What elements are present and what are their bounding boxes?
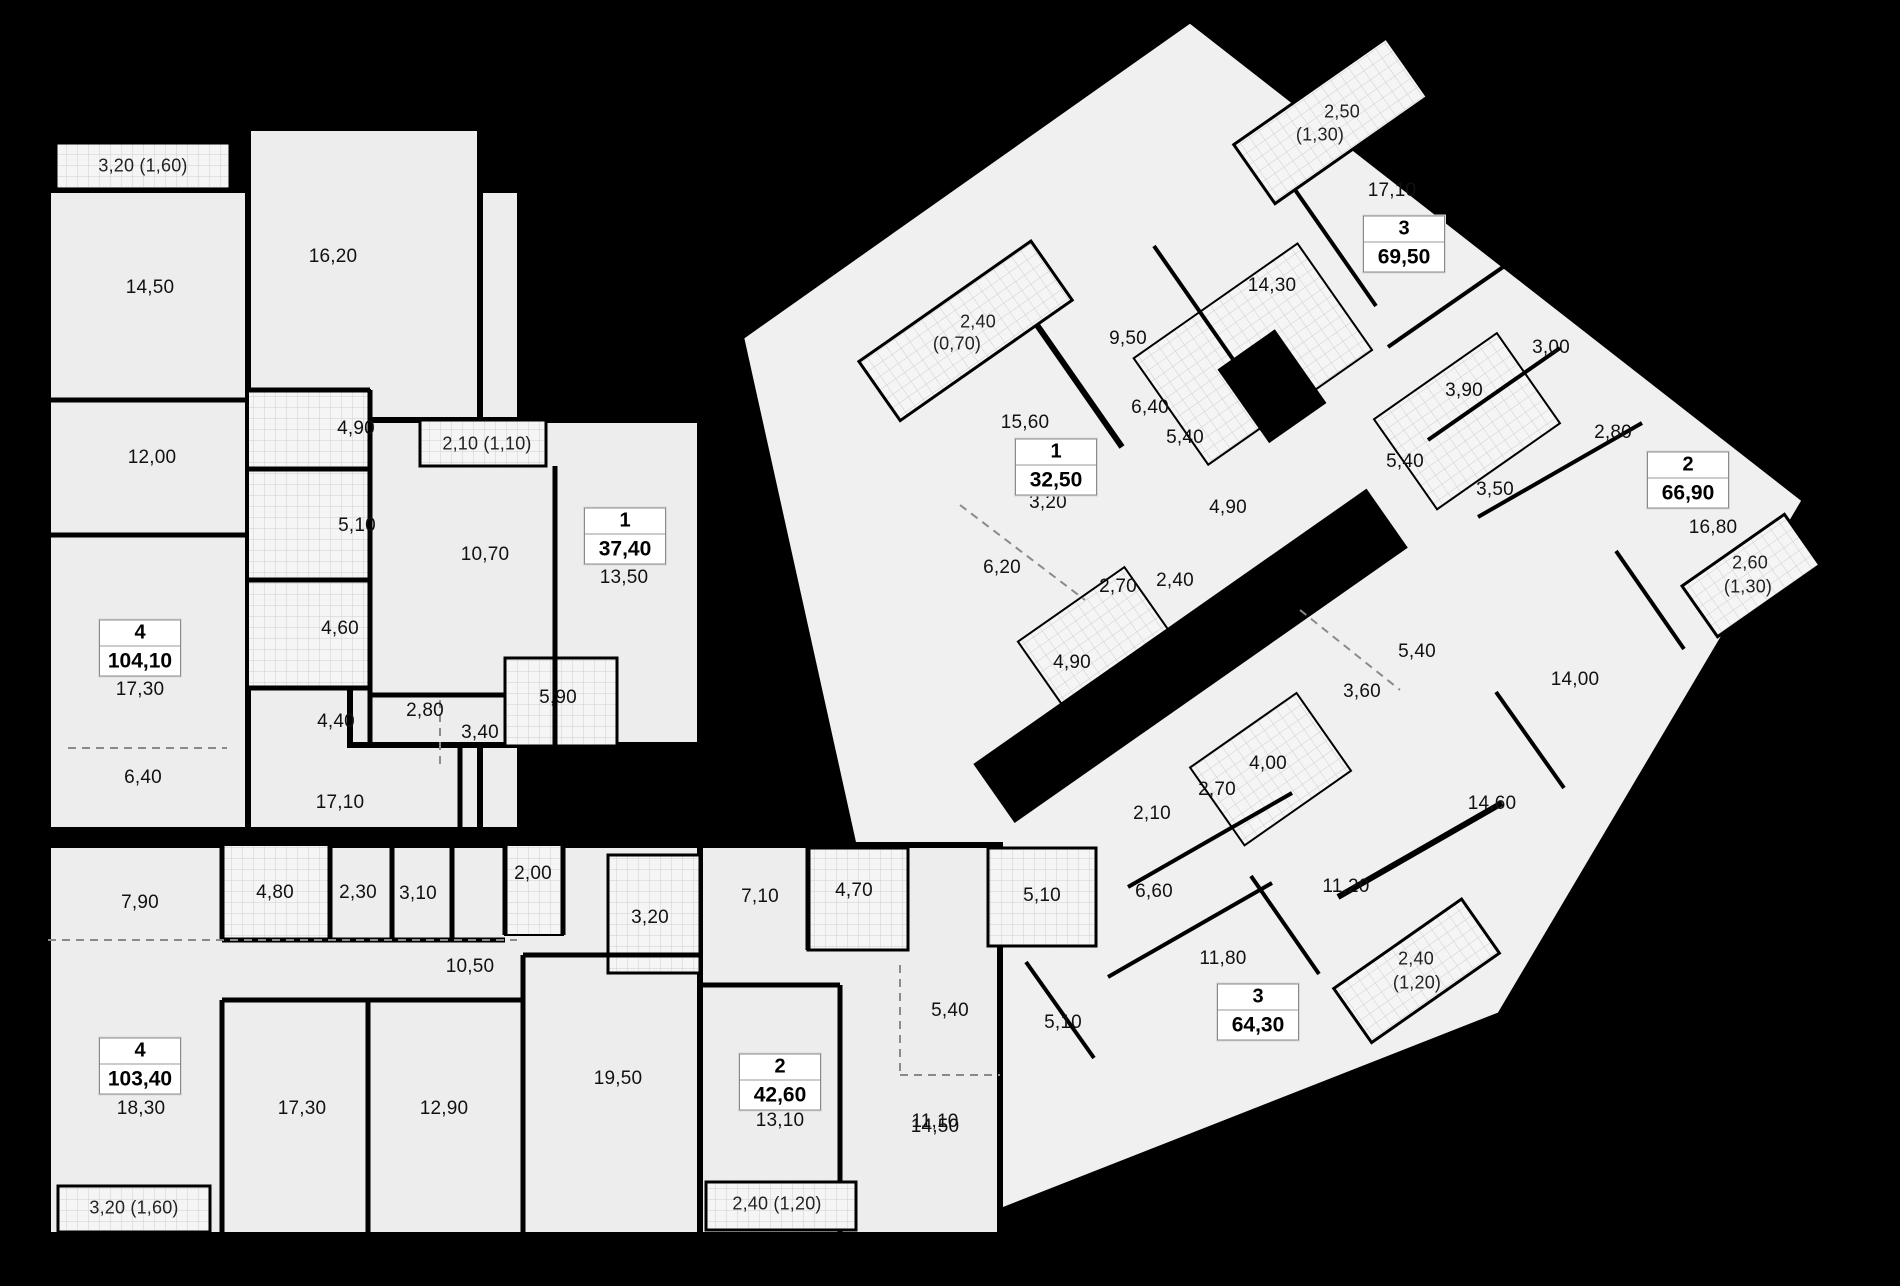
room-area-label: 2,00 — [514, 863, 552, 885]
badge-rooms-count: 2 — [1648, 453, 1728, 479]
room-area-label: 4,90 — [1053, 652, 1091, 674]
room-area-label: 4,90 — [1209, 497, 1247, 519]
room-area-label: 14,50 — [911, 1116, 960, 1138]
room-area-label: 2,80 — [406, 700, 444, 722]
room-area-label: 12,90 — [420, 1098, 469, 1120]
badge-total-area: 37,40 — [585, 535, 665, 564]
room-area-label: 16,20 — [309, 246, 358, 268]
badge-rooms-count: 3 — [1218, 985, 1298, 1011]
room-area-label: 2,40 — [1156, 570, 1194, 592]
balcony-area-label: (0,70) — [933, 334, 981, 355]
room-area-label: 2,70 — [1099, 576, 1137, 598]
room-area-label: 13,50 — [600, 567, 649, 589]
room-area-label: 9,50 — [1109, 328, 1147, 350]
balcony-area-label: (1,20) — [1393, 973, 1441, 994]
room-area-label: 15,60 — [1001, 412, 1050, 434]
room-area-label: 16,80 — [1689, 517, 1738, 539]
balcony-area-label: (1,30) — [1724, 577, 1772, 598]
badge-total-area: 64,30 — [1218, 1011, 1298, 1040]
apartment-badge-104-10: 4104,10 — [99, 620, 181, 677]
room-area-label: 4,40 — [317, 711, 355, 733]
balcony-area-label: 3,20 (1,60) — [98, 156, 187, 177]
balcony-area-label: 2,60 — [1732, 553, 1768, 574]
room-area-label: 3,90 — [1445, 380, 1483, 402]
labels-layer: 14,5016,2012,004,905,104,6017,306,404,40… — [0, 0, 1900, 1286]
room-area-label: 3,10 — [399, 883, 437, 905]
room-area-label: 5,90 — [539, 687, 577, 709]
room-area-label: 3,40 — [461, 722, 499, 744]
room-area-label: 5,40 — [1166, 427, 1204, 449]
apartment-badge-66-90: 266,90 — [1647, 452, 1729, 509]
room-area-label: 6,60 — [1135, 881, 1173, 903]
room-area-label: 5,40 — [931, 1000, 969, 1022]
apartment-badge-32-50: 132,50 — [1015, 439, 1097, 496]
balcony-area-label: 2,50 — [1324, 102, 1360, 123]
badge-rooms-count: 4 — [100, 621, 180, 647]
room-area-label: 11,80 — [1199, 948, 1246, 970]
room-area-label: 18,30 — [117, 1098, 166, 1120]
apartment-badge-42-60: 242,60 — [739, 1054, 821, 1111]
room-area-label: 6,40 — [124, 767, 162, 789]
room-area-label: 12,00 — [128, 447, 177, 469]
badge-total-area: 104,10 — [100, 647, 180, 676]
balcony-area-label: (1,30) — [1296, 125, 1344, 146]
room-area-label: 3,50 — [1476, 479, 1514, 501]
badge-rooms-count: 1 — [1016, 440, 1096, 466]
room-area-label: 19,50 — [594, 1068, 643, 1090]
room-area-label: 14,30 — [1248, 275, 1297, 297]
badge-total-area: 103,40 — [100, 1065, 180, 1094]
room-area-label: 17,30 — [278, 1098, 327, 1120]
room-area-label: 14,50 — [126, 277, 175, 299]
badge-rooms-count: 4 — [100, 1039, 180, 1065]
apartment-badge-64-30: 364,30 — [1217, 984, 1299, 1041]
room-area-label: 4,70 — [835, 880, 873, 902]
room-area-label: 4,00 — [1249, 753, 1287, 775]
room-area-label: 17,30 — [116, 679, 165, 701]
room-area-label: 3,00 — [1532, 337, 1570, 359]
badge-total-area: 69,50 — [1364, 243, 1444, 272]
badge-total-area: 66,90 — [1648, 479, 1728, 508]
room-area-label: 10,50 — [446, 956, 495, 978]
room-area-label: 2,80 — [1594, 422, 1632, 444]
apartment-badge-37-40: 137,40 — [584, 508, 666, 565]
balcony-area-label: 2,40 (1,20) — [732, 1194, 821, 1215]
room-area-label: 17,10 — [316, 792, 365, 814]
room-area-label: 6,40 — [1131, 397, 1169, 419]
badge-total-area: 32,50 — [1016, 466, 1096, 495]
balcony-area-label: 2,40 — [960, 312, 996, 333]
apartment-badge-103-40: 4103,40 — [99, 1038, 181, 1095]
room-area-label: 5,10 — [338, 515, 376, 537]
room-area-label: 2,70 — [1198, 779, 1236, 801]
room-area-label: 14,60 — [1468, 793, 1517, 815]
badge-total-area: 42,60 — [740, 1081, 820, 1110]
room-area-label: 17,10 — [1368, 180, 1417, 202]
room-area-label: 2,30 — [339, 882, 377, 904]
room-area-label: 11,20 — [1322, 876, 1369, 898]
badge-rooms-count: 2 — [740, 1055, 820, 1081]
room-area-label: 3,60 — [1343, 681, 1381, 703]
room-area-label: 2,10 — [1133, 803, 1171, 825]
room-area-label: 13,10 — [756, 1110, 805, 1132]
room-area-label: 7,90 — [121, 892, 159, 914]
room-area-label: 7,10 — [741, 886, 779, 908]
badge-rooms-count: 1 — [585, 509, 665, 535]
balcony-area-label: 2,40 — [1398, 949, 1434, 970]
room-area-label: 5,10 — [1023, 885, 1061, 907]
balcony-area-label: 3,20 (1,60) — [89, 1198, 178, 1219]
room-area-label: 3,20 — [631, 907, 669, 929]
balcony-area-label: 2,10 (1,10) — [442, 434, 531, 455]
badge-rooms-count: 3 — [1364, 217, 1444, 243]
room-area-label: 14,00 — [1551, 669, 1600, 691]
room-area-label: 10,70 — [461, 544, 510, 566]
room-area-label: 6,20 — [983, 557, 1021, 579]
room-area-label: 5,10 — [1044, 1012, 1082, 1034]
room-area-label: 4,80 — [256, 882, 294, 904]
room-area-label: 4,60 — [321, 618, 359, 640]
room-area-label: 5,40 — [1386, 451, 1424, 473]
apartment-badge-69-50: 369,50 — [1363, 216, 1445, 273]
room-area-label: 4,90 — [337, 418, 375, 440]
room-area-label: 5,40 — [1398, 641, 1436, 663]
